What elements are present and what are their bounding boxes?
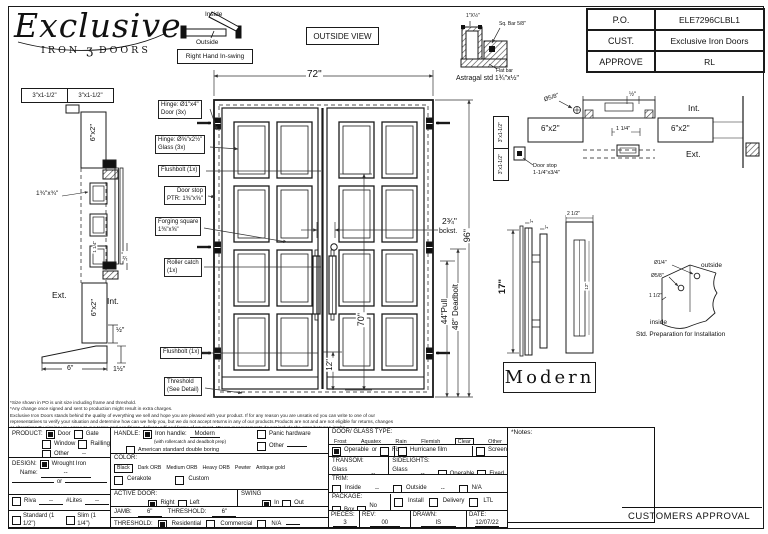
notes-box[interactable]: *Notes: <box>507 427 655 523</box>
thickness-standard-checkbox[interactable] <box>12 516 21 525</box>
form-product-cell: PRODUCT: Door Gate Window Railling Other… <box>8 427 111 458</box>
left-frame-top-label: 6"x2" <box>88 123 97 142</box>
prep-caption: Std. Preparation for Installation <box>636 331 725 339</box>
handle-one-dim-b: 1" <box>544 224 549 230</box>
handle-panic-checkbox[interactable] <box>257 430 266 439</box>
callout-threshold: Threshold (See Detail) <box>164 377 202 396</box>
head-jamb1-label: 3"x1-1/2" <box>493 116 509 149</box>
date-label: DATE: <box>469 512 505 520</box>
color-cerakote-checkbox[interactable] <box>114 476 123 485</box>
head-door-stop-label: Door stop 1-1/4"x3/4" <box>533 163 560 176</box>
form-glass-type-cell: DOOR/ GLASS TYPE: Frost Aquatex Rain Fle… <box>328 427 508 445</box>
riva-checkbox[interactable] <box>12 497 21 506</box>
threshold-na-checkbox[interactable] <box>257 520 266 528</box>
color-heavyorb-option[interactable]: Heavy ORB <box>202 465 229 472</box>
glass-type-label: DOOR/ GLASS TYPE: <box>332 429 504 437</box>
threshold-label: THRESHOLD: <box>114 521 153 528</box>
color-antiquegold-option[interactable]: Antique gold <box>256 465 285 472</box>
left-one-quarter-dim: 1 1/4" <box>92 240 97 254</box>
prep-outside-label: outside <box>701 262 722 270</box>
prep-dim3: 1 1/2" <box>649 293 662 299</box>
notes-label: *Notes: <box>511 429 532 436</box>
left-jamb2-label: 3"x1-1/2" <box>67 88 114 103</box>
callout-flushbolt-top: Flushbolt (1x) <box>158 165 200 177</box>
rev-value: 00 <box>370 520 400 528</box>
jamb-threshold-field[interactable]: 6" <box>212 509 236 517</box>
product-window-checkbox[interactable] <box>42 440 51 449</box>
left-stop-dim: 1¾"x¾" <box>36 190 58 198</box>
form-thickness-cell: Standard (1 1/2") Slim (1 1/4") <box>8 510 111 528</box>
callout-flushbolt-bottom: Flushbolt (1x) <box>160 347 202 359</box>
product-railing-checkbox[interactable] <box>78 440 87 449</box>
left-threshold-height-dim: 1½" <box>113 366 125 374</box>
handle-iron-checkbox[interactable] <box>143 430 152 439</box>
approve-label: APPROVE <box>587 51 655 72</box>
dim-height: 96" <box>462 228 473 243</box>
left-int-label: Int. <box>107 296 119 306</box>
form-transom-sidelights-cell: TRANSOM: Glass type:-- SIDELIGHTS: Glass… <box>328 456 508 475</box>
handle-style-field[interactable]: Modern <box>190 431 220 439</box>
head-half-dim: ½" <box>628 92 637 99</box>
swing-outside-label: Outside <box>196 39 218 47</box>
form-swing-cell: SWING In Out <box>237 489 329 507</box>
jamb-label: JAMB: <box>114 509 132 517</box>
handle-inner-dim: 12" <box>584 282 589 291</box>
head-right-frame-label: 6"x2" <box>671 124 690 134</box>
dim-deadbolt: 48" Deadbolt <box>451 283 461 331</box>
dim-pull: 44"Pull <box>440 298 450 325</box>
form-design-cell: DESIGN: Wrought Iron Name:-- or <box>8 457 111 495</box>
logo-subtitle: IRON ʒ DOORS <box>30 45 162 57</box>
riva-field[interactable]: -- <box>39 498 63 506</box>
color-darkorb-option[interactable]: Dark ORB <box>138 465 162 472</box>
approval-signature-line[interactable] <box>622 507 762 508</box>
pieces-label: PIECES: <box>331 512 357 520</box>
po-value: ELE7296CLBL1 <box>655 9 764 30</box>
riva-lites-field[interactable]: -- <box>85 498 109 506</box>
handle-other-checkbox[interactable] <box>257 442 266 451</box>
package-label: PACKAGE: <box>332 494 387 502</box>
callout-roller: Roller catch (1x) <box>164 258 202 277</box>
product-door-checkbox[interactable] <box>46 430 55 439</box>
prep-dim1: Ø1/4" <box>654 260 667 266</box>
dim-backset-sub: bckst. <box>438 228 458 236</box>
callout-door-stop: Door stop PTR: 1⅜"x⅝" <box>164 186 206 205</box>
handle-one-dim-a: 1" <box>529 218 534 224</box>
trim-label: TRIM: <box>332 476 504 484</box>
form-trim-cell: TRIM: Inside-- Outside-- N/A <box>328 474 508 493</box>
po-table: P.O. ELE7296CLBL1 CUST. Exclusive Iron D… <box>586 8 765 73</box>
package-delivery-checkbox[interactable] <box>429 498 438 507</box>
package-ltl-checkbox[interactable] <box>469 498 478 507</box>
astragal-sqbar: Sq. Bar 5/8" <box>499 21 526 27</box>
handle-label: HANDLE: <box>114 431 140 439</box>
left-frame-bottom-label: 6"x2" <box>89 298 98 317</box>
glass-fixed-checkbox[interactable] <box>380 447 389 456</box>
left-half-bottom-dim: ½" <box>115 327 125 335</box>
callout-hinge-glass: Hinge: Ø⅝"x2½" Glass (3x) <box>155 135 205 154</box>
design-wrought-checkbox[interactable] <box>40 460 49 469</box>
form-package-cell: PACKAGE: Box No box Install Delivery LTL <box>328 492 508 511</box>
handle-height-dim: 17" <box>497 278 508 295</box>
logo-script: Exclusive <box>14 6 182 45</box>
glass-hurricane-checkbox[interactable] <box>398 447 407 456</box>
form-active-door-cell: ACTIVE DOOR: Right Left <box>110 489 238 507</box>
color-label: COLOR: <box>114 455 325 463</box>
swing-caption: Right Hand In-swing <box>177 49 253 64</box>
logo-iron: IRON <box>41 45 80 57</box>
rev-label: REV: <box>362 512 408 520</box>
form-meta-cell: PIECES:3 REV:00 DRAWN:IS DATE:12/07/22 <box>328 510 508 528</box>
head-gap-dim: 1 1/4" <box>615 126 631 133</box>
sidelights-label: SIDELIGHTS: <box>392 458 504 466</box>
color-black-option[interactable]: Black <box>114 464 133 473</box>
dim-width: 72" <box>306 69 323 81</box>
threshold-commercial-checkbox[interactable] <box>206 520 215 528</box>
transom-label: TRANSOM: <box>332 458 385 466</box>
astragal-caption: Astragal std 1¾"x½" <box>456 75 519 83</box>
pieces-value: 3 <box>333 520 357 528</box>
swing-label: SWING <box>241 491 325 499</box>
left-half-top-dim: ½" <box>122 251 129 261</box>
approve-value: RL <box>655 51 764 72</box>
door-spec-sheet: Exclusive IRON ʒ DOORS Inside Outside Ri… <box>0 0 768 534</box>
prep-inside-label: inside <box>650 319 667 327</box>
form-handle-cell: HANDLE: Iron handle: Modern (with roller… <box>110 427 329 454</box>
product-gate-checkbox[interactable] <box>74 430 83 439</box>
color-mediumorb-option[interactable]: Medium ORB <box>166 465 197 472</box>
logo-ornament-icon: ʒ <box>86 43 93 57</box>
po-label: P.O. <box>587 9 655 30</box>
view-label: OUTSIDE VIEW <box>306 27 379 45</box>
thickness-slim-checkbox[interactable] <box>66 516 75 525</box>
color-pewter-option[interactable]: Pewter <box>235 465 251 472</box>
color-custom-checkbox[interactable] <box>175 476 184 485</box>
handle-style-label: Modern <box>503 362 596 393</box>
active-door-label: ACTIVE DOOR: <box>114 491 234 499</box>
dim-bottom: 12" <box>325 358 335 372</box>
head-left-frame-label: 6"x2" <box>541 124 560 134</box>
jamb-field[interactable]: 6" <box>138 509 162 517</box>
dim-glass-height: 70" <box>356 312 367 327</box>
form-color-cell: COLOR: Black Dark ORB Medium ORB Heavy O… <box>110 453 329 490</box>
left-jamb1-label: 3"x1-1/2" <box>21 88 68 103</box>
form-riva-cell: Riva-- #Lites-- <box>8 494 111 511</box>
callout-hinge-door: Hinge: Ø1"x4" Door (3x) <box>158 100 202 119</box>
drawn-label: DRAWN: <box>413 512 464 520</box>
approval-label: CUSTOMERS APPROVAL <box>628 511 750 522</box>
astragal-flatbar: Flat bar <box>496 68 513 74</box>
left-ext-label: Ext. <box>52 290 67 300</box>
astragal-dim: 1"X½" <box>466 13 480 19</box>
glass-operable-checkbox[interactable] <box>332 447 341 456</box>
prep-dim2: Ø5/8" <box>651 273 664 279</box>
product-label: PRODUCT: <box>12 431 43 439</box>
head-ext-label: Ext. <box>686 149 701 159</box>
design-label: DESIGN: <box>12 461 37 469</box>
form-threshold-cell: THRESHOLD: Residential Commercial N/A <box>110 517 329 528</box>
date-value: 12/07/22 <box>475 520 499 528</box>
head-int-label: Int. <box>688 103 700 113</box>
dim-backset: 2¾" <box>441 216 458 226</box>
handle-width-dim: 2 1/2" <box>566 211 581 217</box>
callout-forging: Forging square 1⅜"x⅝" <box>155 217 201 236</box>
cust-label: CUST. <box>587 30 655 51</box>
design-name-field[interactable]: -- <box>41 470 91 478</box>
head-jamb2-label: 3"x1-1/2" <box>493 148 509 181</box>
package-install-checkbox[interactable] <box>394 498 403 507</box>
threshold-residential-checkbox[interactable] <box>158 520 167 528</box>
glass-screen-checkbox[interactable] <box>476 447 485 456</box>
swing-inside-label: Inside <box>205 11 222 19</box>
drawn-value: IS <box>421 520 456 528</box>
logo-doors: DOORS <box>99 45 151 57</box>
cust-value: Exclusive Iron Doors <box>655 30 764 51</box>
left-threshold-width-dim: 6" <box>66 365 74 373</box>
